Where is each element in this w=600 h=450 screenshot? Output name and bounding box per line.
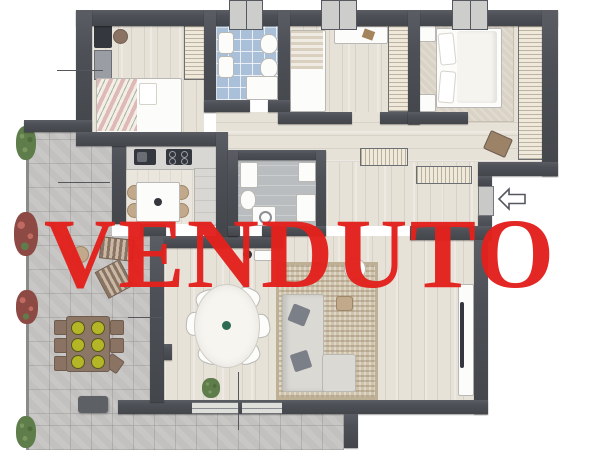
window-bedroom2 bbox=[321, 0, 357, 30]
wall-master-bottom-left bbox=[408, 112, 468, 124]
leader-line-kitchen bbox=[58, 182, 110, 183]
plate-5 bbox=[71, 355, 85, 369]
plate-6 bbox=[91, 355, 105, 369]
wall-bedroom2-master bbox=[408, 10, 420, 124]
wall-bathroom1-bottom-a bbox=[204, 100, 250, 112]
window-living-1 bbox=[192, 402, 238, 414]
tv-screen bbox=[460, 302, 464, 368]
wall-bathroom1-bottom-b bbox=[268, 100, 290, 112]
burner-3 bbox=[169, 158, 176, 165]
leader-line-bedroom1 bbox=[57, 70, 103, 71]
master-pillow-1 bbox=[437, 32, 456, 65]
bedroom2-wardrobe bbox=[388, 16, 410, 112]
bedroom2-bed bbox=[290, 30, 326, 112]
terrace-floor-lower bbox=[28, 414, 344, 450]
terrace-chair-5 bbox=[110, 338, 124, 353]
wall-bedroom1-bathroom1 bbox=[204, 10, 216, 112]
terrace-railing bbox=[26, 120, 29, 450]
kitchen-sink-basin bbox=[137, 152, 147, 162]
terrace-plant-2 bbox=[14, 212, 38, 256]
master-nightstand-2 bbox=[418, 94, 436, 112]
hallway-sideboard-2 bbox=[416, 166, 472, 184]
wall-terrace-stub bbox=[344, 414, 358, 448]
plate-3 bbox=[71, 338, 85, 352]
bedroom1-dresser bbox=[94, 50, 112, 80]
living-plant bbox=[202, 378, 220, 398]
master-duvet bbox=[457, 31, 497, 103]
plate-2 bbox=[91, 321, 105, 335]
master-wardrobe bbox=[518, 14, 544, 160]
master-bed bbox=[436, 28, 502, 108]
sold-overlay-text: VENDUTO bbox=[44, 204, 556, 304]
bathroom1-bidet bbox=[260, 58, 278, 78]
bathroom1-sink-1 bbox=[218, 32, 234, 54]
wall-bathroom2-top bbox=[228, 150, 326, 160]
floor-plan-image: VENDUTO bbox=[0, 0, 600, 450]
wall-living-bottom bbox=[118, 400, 488, 414]
kitchen-stove bbox=[166, 149, 192, 165]
leader-line-window bbox=[238, 372, 239, 430]
wall-living-left-pier bbox=[164, 344, 172, 360]
kitchen-sink bbox=[134, 149, 156, 165]
terrace-plant-3 bbox=[16, 290, 38, 324]
bedroom2-desk-object bbox=[362, 28, 375, 40]
wall-bedroom2-bottom-a bbox=[278, 112, 352, 124]
bedroom1-bed bbox=[96, 78, 182, 134]
burner-4 bbox=[181, 158, 188, 165]
sofa-chaise bbox=[322, 354, 356, 392]
window-master bbox=[452, 0, 488, 30]
hallway-sideboard-1 bbox=[360, 148, 408, 166]
master-pillow-2 bbox=[438, 70, 457, 103]
wall-right bbox=[542, 10, 558, 176]
leader-line-living bbox=[128, 317, 162, 318]
wall-master-bottom bbox=[478, 162, 558, 176]
bathroom2-cabinet bbox=[298, 162, 316, 182]
bedroom1-bed-blanket bbox=[97, 79, 137, 131]
terrace-ottoman bbox=[78, 396, 108, 413]
wall-bedroom1-bottom bbox=[76, 132, 216, 146]
terrace-plant-4 bbox=[16, 416, 36, 448]
bedroom1-chair bbox=[113, 29, 128, 44]
bathroom2-sink bbox=[240, 162, 258, 188]
bathroom1-toilet bbox=[260, 34, 278, 54]
wall-bedroom1-left bbox=[76, 10, 92, 132]
master-nightstand-1 bbox=[418, 24, 436, 42]
window-bathroom1 bbox=[229, 0, 263, 30]
bedroom2-bed-blanket bbox=[291, 31, 323, 69]
burner-2 bbox=[181, 151, 188, 158]
wall-terrace-top bbox=[24, 120, 92, 132]
bathroom1-sink-2 bbox=[218, 56, 234, 78]
burner-1 bbox=[169, 151, 176, 158]
bathroom1-shower-tray bbox=[246, 76, 278, 100]
wall-entry-jamb-upper bbox=[478, 176, 492, 186]
bedroom1-pillow bbox=[139, 83, 157, 105]
table-centerpiece bbox=[222, 321, 231, 330]
window-living-2 bbox=[242, 402, 282, 414]
terrace-dining-table bbox=[66, 316, 110, 372]
terrace-chair-4 bbox=[110, 320, 124, 335]
plate-4 bbox=[91, 338, 105, 352]
plate-1 bbox=[71, 321, 85, 335]
